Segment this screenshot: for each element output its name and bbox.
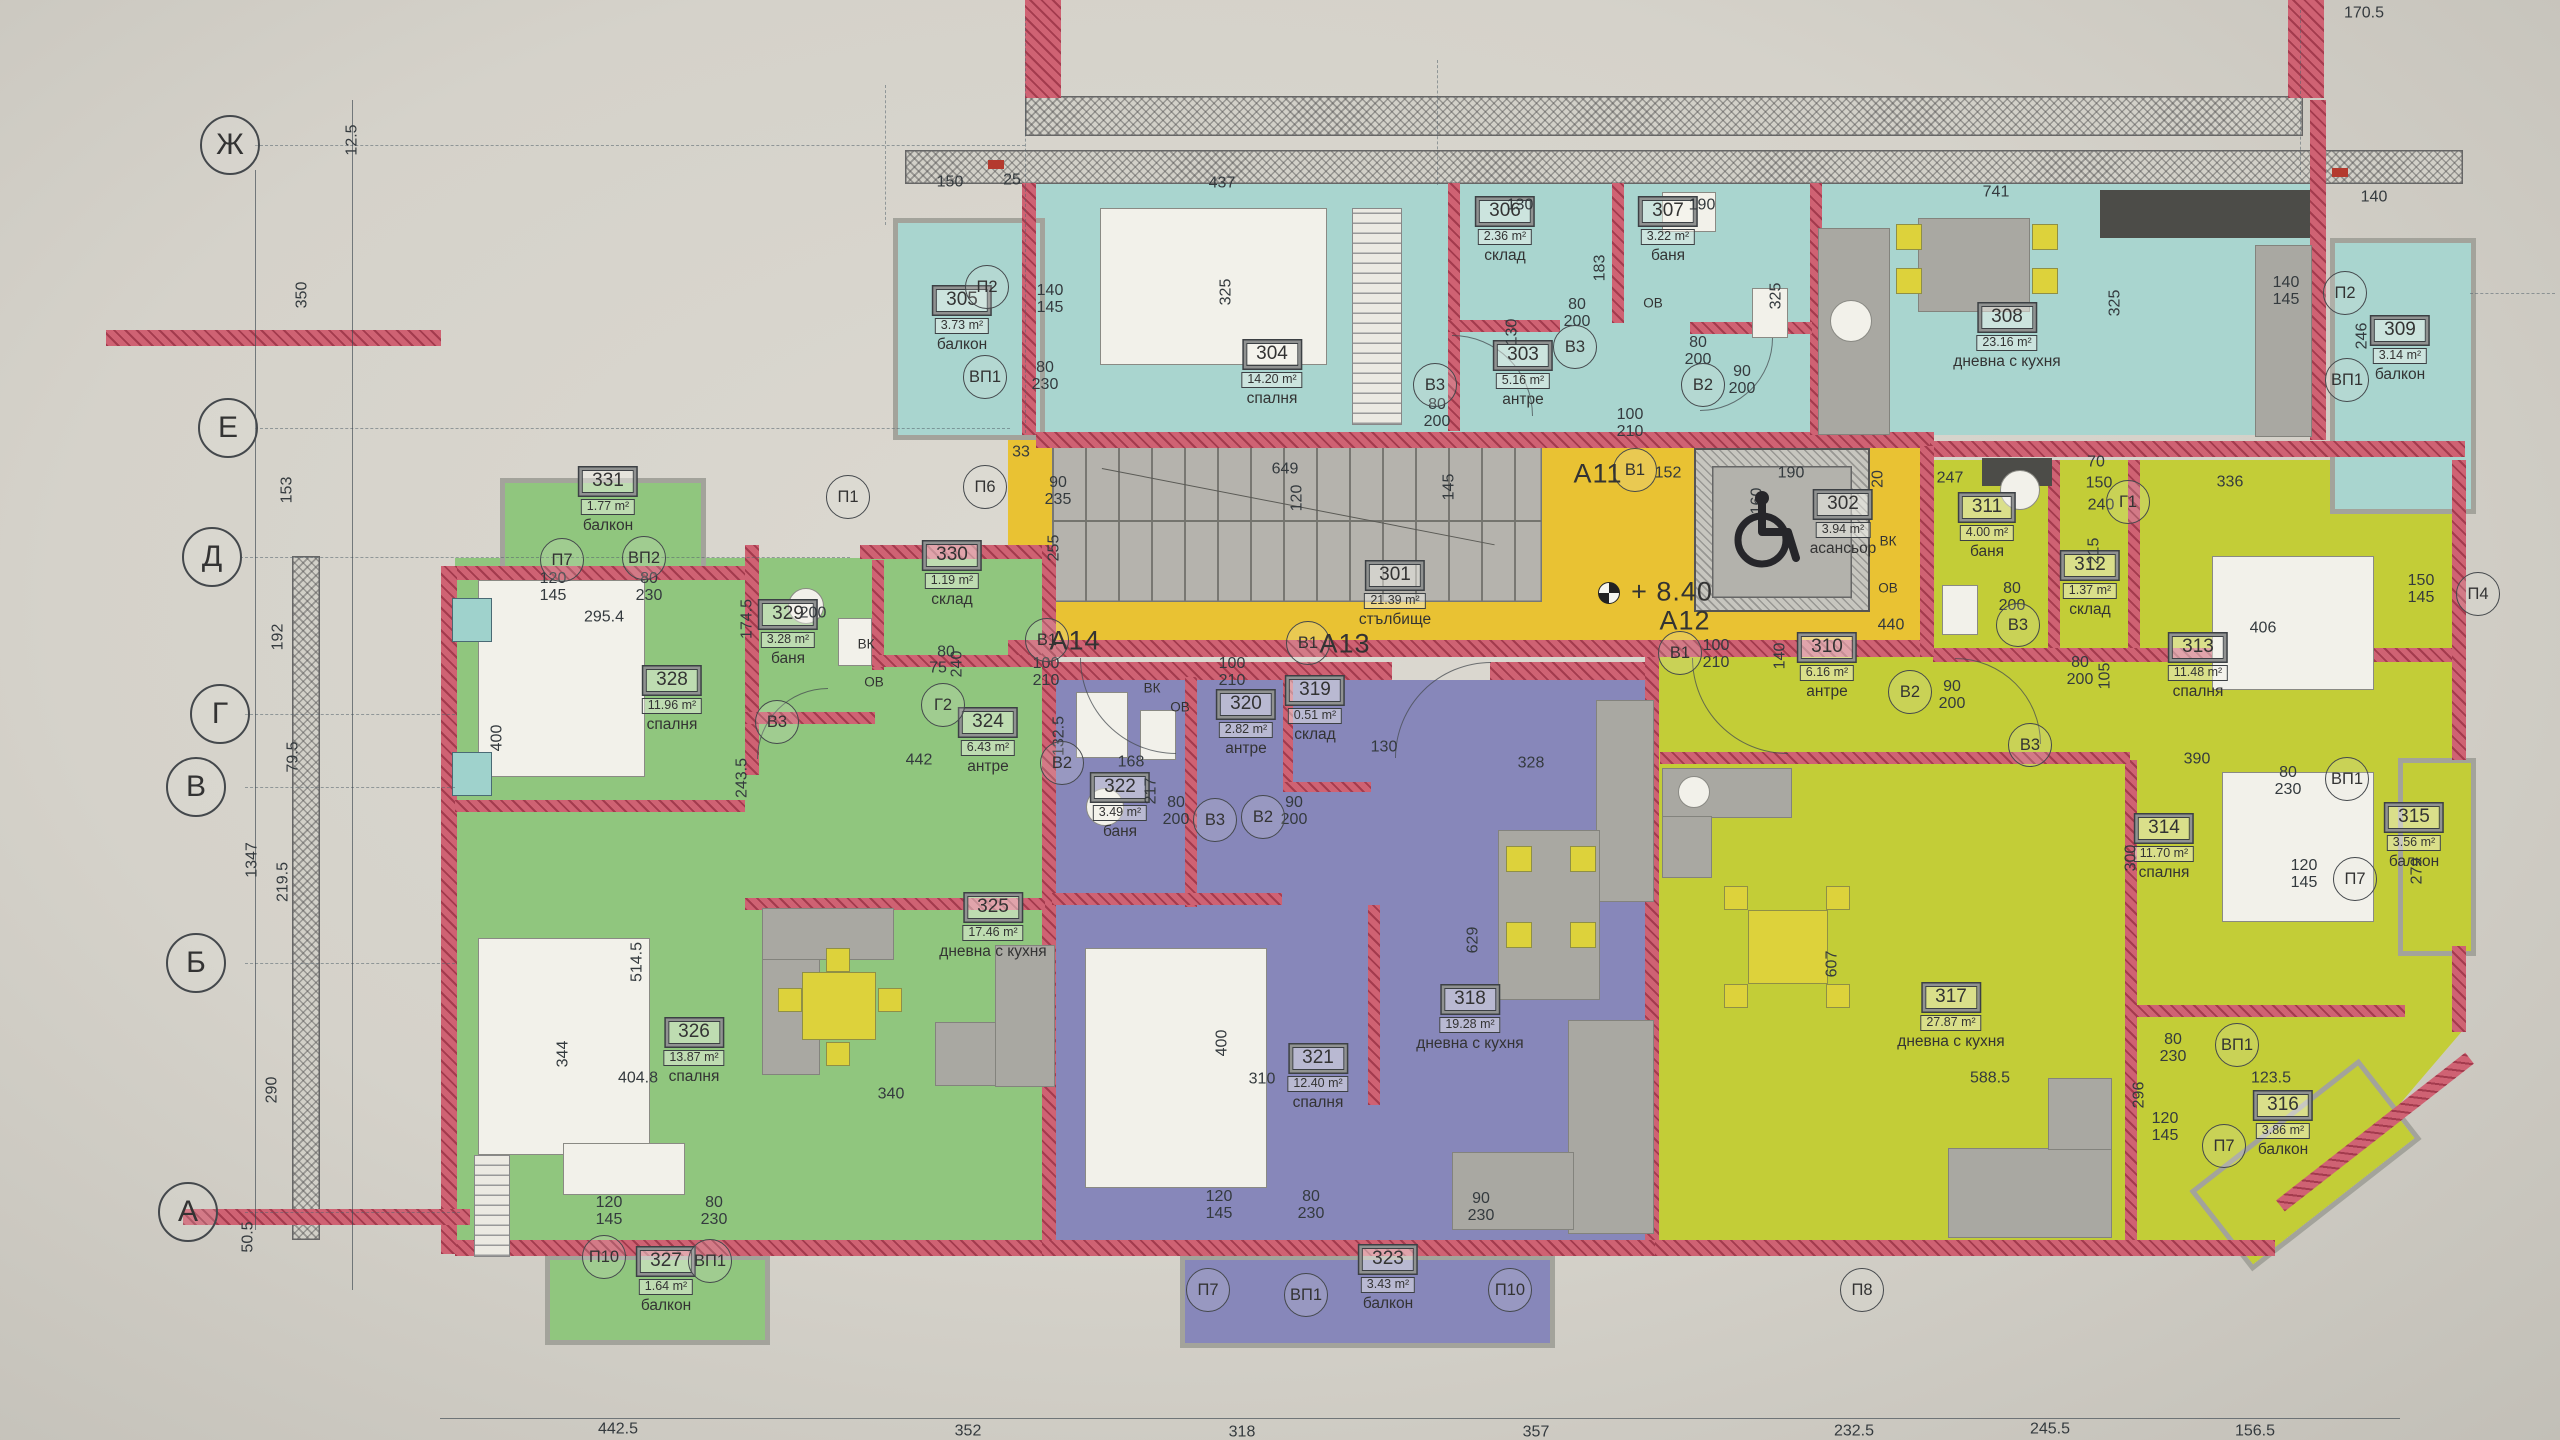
room-name: склад	[2063, 601, 2117, 618]
dimension-label: 130	[1371, 740, 1398, 757]
dimension-label: 105	[2098, 663, 2115, 690]
dimension-label: 318	[1229, 1425, 1256, 1440]
room-number: 318	[1444, 988, 1496, 1011]
room-area: 3.22 m²	[1641, 229, 1695, 245]
dimension-label: 153	[280, 477, 297, 504]
axis-label-Д: Д	[182, 527, 242, 587]
room-label: 31311.48 m²спалня	[2168, 636, 2228, 700]
opening-marker-В2: В2	[1241, 795, 1285, 839]
room-area: 23.16 m²	[1976, 335, 2037, 351]
room-number: 327	[640, 1250, 692, 1273]
furniture	[826, 1042, 850, 1066]
room-label: 3223.49 m²баня	[1093, 776, 1147, 840]
door-swing-arc	[1395, 662, 1491, 758]
furniture	[1826, 984, 1850, 1008]
room-number: 315	[2388, 806, 2440, 829]
dimension-label: 20	[1871, 470, 1888, 488]
room-name: стълбище	[1359, 611, 1431, 628]
wall	[905, 150, 2463, 184]
dimension-label: 140 145	[1037, 283, 1064, 317]
dimension-label: 140	[1773, 643, 1790, 670]
dimension-label: 232.5	[1834, 1424, 1874, 1440]
room-name: дневна с кухня	[1953, 353, 2060, 370]
grid-line	[1025, 18, 1026, 433]
room-name: склад	[925, 591, 979, 608]
dimension-label: 90 200	[1939, 679, 1966, 713]
room-name: балкон	[581, 517, 635, 534]
room-number: 301	[1369, 564, 1421, 587]
grid-line	[245, 963, 455, 964]
dimension-label: 246	[2355, 323, 2372, 350]
dimension-label: 437	[1209, 176, 1236, 193]
room-name: спалня	[642, 716, 702, 733]
opening-marker-Г1: Г1	[2106, 480, 2150, 524]
wall	[292, 556, 320, 1240]
opening-marker-П2: П2	[2323, 271, 2367, 315]
axis-label-Г: Г	[190, 684, 250, 744]
opening-marker-В3: В3	[1413, 363, 1457, 407]
furniture	[1506, 922, 1532, 948]
opening-marker-П8: П8	[1840, 1268, 1884, 1312]
room-label: 3114.00 m²баня	[1960, 496, 2014, 560]
room-name: антре	[1800, 683, 1854, 700]
room-name: балкон	[1361, 1295, 1415, 1312]
dimension-label: 75	[929, 661, 947, 678]
room-area: 3.86 m²	[2256, 1123, 2310, 1139]
room-number: 304	[1246, 343, 1298, 366]
room-number: 325	[967, 896, 1019, 919]
opening-marker-В2: В2	[1040, 741, 1084, 785]
dimension-label: 25	[1003, 173, 1021, 190]
dimension-label: 33	[1012, 445, 1030, 462]
furniture	[474, 1155, 510, 1257]
dimension-label: 12.5	[345, 124, 362, 155]
room-area: 1.77 m²	[581, 499, 635, 515]
room-area: 3.56 m²	[2387, 835, 2441, 851]
room-area: 3.28 m²	[761, 632, 815, 648]
opening-marker-ВП1: ВП1	[963, 355, 1007, 399]
annotation-text: ОВ	[1643, 296, 1663, 311]
dimension-label: 100 210	[1219, 656, 1246, 690]
room-label: 3023.94 m²асансьор	[1810, 493, 1877, 557]
room-area: 1.37 m²	[2063, 583, 2117, 599]
dimension-label: 190	[1689, 198, 1716, 215]
dimension-label: 215	[2087, 538, 2104, 565]
dimension-label: 120 145	[2291, 858, 2318, 892]
opening-marker-П2: П2	[965, 265, 1009, 309]
opening-marker-В2: В2	[1681, 363, 1725, 407]
dimension-label: 50.5	[241, 1221, 258, 1252]
room-label: 32811.96 m²спалня	[642, 669, 702, 733]
room-area: 4.00 m²	[1960, 525, 2014, 541]
room-label: 3271.64 m²балкон	[639, 1250, 693, 1314]
dimension-label: 80 200	[2067, 655, 2094, 689]
dimension-label: 80 230	[2275, 765, 2302, 799]
opening-marker-П10: П10	[582, 1235, 626, 1279]
room-label: 3035.16 m²антре	[1496, 344, 1550, 408]
furniture	[826, 948, 850, 972]
room-label: 3311.77 m²балкон	[581, 470, 635, 534]
dimension-label: 80 230	[1298, 1189, 1325, 1223]
wall	[745, 545, 759, 775]
dimension-label: 90 200	[1729, 364, 1756, 398]
room-number: 316	[2257, 1094, 2309, 1117]
dimension-label: 79.5	[286, 741, 303, 772]
axis-label-Е: Е	[198, 398, 258, 458]
furniture	[452, 752, 492, 796]
dimension-label: 217	[1144, 778, 1161, 805]
furniture	[2032, 224, 2058, 250]
dimension-label: 150	[937, 175, 964, 192]
axis-label-А: А	[158, 1182, 218, 1242]
dimension-label: 350	[295, 282, 312, 309]
room-label: 3246.43 m²антре	[961, 711, 1015, 775]
room-number: 321	[1292, 1047, 1344, 1070]
opening-marker-В3: В3	[1996, 603, 2040, 647]
wall	[1920, 446, 1934, 657]
room-area: 11.96 m²	[642, 698, 702, 714]
furniture	[1506, 846, 1532, 872]
wall	[1008, 640, 1933, 657]
axis-label-Ж: Ж	[200, 115, 260, 175]
room-area: 3.43 m²	[1361, 1277, 1415, 1293]
room-area: 2.82 m²	[1219, 722, 1273, 738]
dimension-label: 120 145	[1206, 1189, 1233, 1223]
room-area: 13.87 m²	[663, 1050, 724, 1066]
room-area: 2.36 m²	[1478, 229, 1532, 245]
dimension-label: 219.5	[276, 862, 293, 902]
room-label: 30414.20 m²спалня	[1241, 343, 1302, 407]
dimension-label: 120 145	[2152, 1111, 2179, 1145]
furniture	[1826, 886, 1850, 910]
dimension-label: 336	[2217, 475, 2244, 492]
section-marker	[988, 160, 1004, 169]
dimension-label: 514.5	[630, 942, 647, 982]
annotation-text: А11	[1573, 459, 1622, 490]
room-area: 6.43 m²	[961, 740, 1015, 756]
opening-marker-Г2: Г2	[921, 683, 965, 727]
furniture	[452, 598, 492, 642]
grid-line	[885, 85, 886, 225]
grid-line	[245, 714, 455, 715]
dimension-label: 442.5	[598, 1422, 638, 1439]
wall	[1612, 183, 1624, 323]
dimension-label: 279	[2410, 858, 2427, 885]
wall	[1036, 432, 1934, 448]
dimension-label: 90 230	[1468, 1191, 1495, 1225]
dimension-label: 340	[878, 1087, 905, 1104]
dimension-label: 588.5	[1970, 1071, 2010, 1088]
room-area: 0.51 m²	[1288, 708, 1342, 724]
opening-marker-П7: П7	[2333, 857, 2377, 901]
opening-marker-П1: П1	[826, 475, 870, 519]
room-area: 19.28 m²	[1439, 1017, 1500, 1033]
room-area: 27.87 m²	[1920, 1015, 1981, 1031]
dimension-label: 80	[937, 645, 955, 662]
dimension-label: 168	[1118, 755, 1145, 772]
furniture	[1570, 922, 1596, 948]
wall	[1283, 782, 1371, 792]
annotation-text: А12	[1659, 606, 1710, 637]
room-label: 3106.16 m²антре	[1800, 636, 1854, 700]
room-area: 1.19 m²	[925, 573, 979, 589]
opening-marker-В1: В1	[1658, 631, 1702, 675]
dimension-label: 296	[2132, 1082, 2149, 1109]
dimension-label: 100 210	[1617, 407, 1644, 441]
room-name: склад	[1288, 726, 1342, 743]
room-name: балкон	[2256, 1141, 2310, 1158]
room-name: баня	[1960, 543, 2014, 560]
furniture	[1678, 776, 1710, 808]
wall	[455, 1240, 1055, 1256]
opening-marker-ВП1: ВП1	[688, 1239, 732, 1283]
opening-marker-П10: П10	[1488, 1268, 1532, 1312]
furniture	[995, 945, 1055, 1087]
annotation-text: ОВ	[864, 675, 884, 690]
dimension-label: 80 230	[701, 1195, 728, 1229]
dimension-label: 400	[1215, 1030, 1232, 1057]
grid-line	[245, 787, 455, 788]
room-number: 330	[926, 544, 978, 567]
room-name: склад	[1478, 247, 1532, 264]
dimension-label: 145	[1442, 474, 1459, 501]
furniture	[1918, 218, 2030, 312]
dimension-label: 442	[906, 753, 933, 770]
furniture	[1570, 846, 1596, 872]
opening-marker-ВП1: ВП1	[2325, 358, 2369, 402]
opening-marker-П7: П7	[1186, 1268, 1230, 1312]
wall	[455, 566, 755, 580]
room-number: 313	[2172, 636, 2224, 659]
opening-marker-П6: П6	[963, 465, 1007, 509]
dimension-label: 90 200	[1281, 795, 1308, 829]
wall	[1042, 1240, 1655, 1256]
furniture	[1724, 984, 1748, 1008]
wall	[441, 566, 457, 1254]
room-label: 3073.22 m²баня	[1641, 200, 1695, 264]
room-area: 3.49 m²	[1093, 805, 1147, 821]
wall	[1930, 441, 2465, 457]
room-label: 3190.51 m²склад	[1288, 679, 1342, 743]
room-area: 3.73 m²	[935, 318, 989, 334]
dimension-label: 357	[1523, 1425, 1550, 1440]
dimension-label: 607	[1825, 951, 1842, 978]
dimension-label: 100 210	[1703, 638, 1730, 672]
annotation-text: + 8.40	[1631, 577, 1713, 608]
room-label: 3301.19 m²склад	[925, 544, 979, 608]
wall	[2048, 460, 2060, 657]
wall	[2125, 1005, 2405, 1017]
room-name: дневна с кухня	[939, 943, 1046, 960]
dimension-label: 140	[2361, 190, 2388, 207]
room-number: 314	[2138, 817, 2190, 840]
room-area: 5.16 m²	[1496, 373, 1550, 389]
furniture	[1896, 268, 1922, 294]
furniture	[2048, 1078, 2112, 1150]
opening-marker-ВП1: ВП1	[2325, 757, 2369, 801]
room-name: спалня	[1241, 390, 1302, 407]
furniture	[1568, 1020, 1654, 1234]
room-area: 14.20 m²	[1241, 372, 1302, 388]
wall	[872, 560, 884, 670]
annotation-text: ВК	[858, 637, 875, 652]
axis-label-Б: Б	[166, 933, 226, 993]
dimension-label: 183	[1593, 255, 1610, 282]
wall	[2452, 946, 2466, 1032]
floor-plan-canvas: 30121.39 m²стълбище3023.94 m²асансьор303…	[0, 0, 2560, 1440]
dimension-label: 310	[1249, 1072, 1276, 1089]
dimension-label: 174.5	[740, 599, 757, 639]
room-area: 11.48 m²	[2168, 665, 2228, 681]
room-number: 328	[646, 669, 698, 692]
opening-marker-П7: П7	[540, 538, 584, 582]
dimension-label: 406	[2250, 621, 2277, 638]
room-area: 11.70 m²	[2134, 846, 2194, 862]
grid-line	[352, 100, 353, 1290]
opening-marker-В3: В3	[2008, 723, 2052, 767]
annotation-text: А14	[1049, 626, 1100, 657]
section-marker	[2332, 168, 2348, 177]
dimension-label: 190	[1778, 466, 1805, 483]
opening-marker-В3: В3	[1193, 798, 1237, 842]
dimension-label: 70	[2087, 455, 2105, 472]
room-number: 319	[1289, 679, 1341, 702]
grid-line	[2300, 10, 2301, 175]
annotation-text: ОВ	[1170, 700, 1190, 715]
room-label: 3233.43 m²балкон	[1361, 1248, 1415, 1312]
room-name: балкон	[935, 336, 989, 353]
room-number: 310	[1801, 636, 1853, 659]
dimension-label: 90 235	[1045, 475, 1072, 509]
annotation-text: ВК	[1880, 534, 1897, 549]
room-number: 307	[1642, 200, 1694, 223]
dimension-label: 255	[1047, 535, 1064, 562]
furniture	[1948, 1148, 2112, 1238]
axis-label-В: В	[166, 757, 226, 817]
room-label: 32517.46 m²дневна с кухня	[939, 896, 1046, 960]
dimension-label: 300	[2124, 845, 2141, 872]
room-label: 31819.28 m²дневна с кухня	[1416, 988, 1523, 1052]
dimension-label: 290	[265, 1077, 282, 1104]
opening-marker-В3: В3	[755, 700, 799, 744]
furniture	[1100, 208, 1327, 365]
wall	[1052, 893, 1282, 905]
room-name: баня	[1093, 823, 1147, 840]
room-number: 326	[668, 1021, 720, 1044]
room-number: 302	[1817, 493, 1869, 516]
room-label: 31727.87 m²дневна с кухня	[1897, 986, 2004, 1050]
room-area: 6.16 m²	[1800, 665, 1854, 681]
dimension-label: 170.5	[2344, 6, 2384, 23]
dimension-label: 156.5	[2235, 1424, 2275, 1440]
wall	[1690, 322, 1812, 334]
wall	[1490, 662, 1655, 680]
room-label: 3163.86 m²балкон	[2256, 1094, 2310, 1158]
wall	[1025, 96, 2303, 136]
furniture	[1085, 948, 1267, 1188]
room-number: 320	[1220, 693, 1272, 716]
dimension-label: 123.5	[2251, 1071, 2291, 1088]
dimension-label: 400	[490, 725, 507, 752]
grid-line	[440, 1418, 2400, 1419]
room-number: 323	[1362, 1248, 1414, 1271]
dimension-label: 1347	[245, 842, 262, 878]
dimension-label: 325	[1219, 279, 1236, 306]
dimension-label: 245.5	[2030, 1422, 2070, 1439]
dimension-label: 140 145	[2273, 275, 2300, 309]
room-name: антре	[1219, 740, 1273, 757]
room-name: балкон	[639, 1297, 693, 1314]
dimension-label: 192	[271, 624, 288, 651]
furniture	[1942, 585, 1978, 635]
room-name: спалня	[2168, 683, 2228, 700]
room-name: асансьор	[1810, 540, 1877, 557]
room-number: 324	[962, 711, 1014, 734]
dimension-label: 649	[1272, 462, 1299, 479]
furniture	[1352, 208, 1402, 425]
opening-marker-ВП1: ВП1	[1284, 1273, 1328, 1317]
room-area: 12.40 m²	[1287, 1076, 1348, 1092]
room-label: 32613.87 m²спалня	[663, 1021, 724, 1085]
room-number: 331	[582, 470, 634, 493]
wall	[2288, 0, 2324, 98]
dimension-label: 325	[1769, 283, 1786, 310]
room-label: 3093.14 m²балкон	[2373, 319, 2427, 383]
dimension-label: 150 145	[2408, 573, 2435, 607]
opening-marker-ВП2: ВП2	[622, 536, 666, 580]
furniture	[1662, 816, 1712, 878]
furniture	[1830, 300, 1872, 342]
dimension-label: 247	[1937, 471, 1964, 488]
grid-line	[255, 428, 1010, 429]
dimension-label: 440	[1878, 618, 1905, 635]
wall	[1025, 0, 1061, 98]
grid-line	[1437, 60, 1438, 185]
wall	[2310, 100, 2326, 440]
room-area: 1.64 m²	[639, 1279, 693, 1295]
furniture	[2032, 268, 2058, 294]
furniture	[1748, 910, 1828, 984]
room-area: 3.14 m²	[2373, 348, 2427, 364]
wall	[1655, 1240, 2275, 1256]
room-number: 322	[1094, 776, 1146, 799]
dimension-label: 325	[2108, 290, 2125, 317]
wall	[455, 800, 745, 812]
room-number: 308	[1981, 306, 2033, 329]
dimension-label: 295.4	[584, 610, 624, 627]
dimension-label: 328	[1518, 756, 1545, 773]
dimension-label: 404.8	[618, 1071, 658, 1088]
wall	[1660, 752, 2130, 764]
room-name: балкон	[2373, 366, 2427, 383]
wall	[1368, 905, 1380, 1105]
room-number: 311	[1962, 496, 2012, 519]
room-name: спалня	[1287, 1094, 1348, 1111]
room-name: спалня	[663, 1068, 724, 1085]
dimension-label: 120 145	[596, 1195, 623, 1229]
wall	[106, 330, 441, 346]
grid-line	[255, 170, 256, 1230]
room-name: дневна с кухня	[1416, 1035, 1523, 1052]
annotation-text: ВК	[1144, 681, 1161, 696]
room-number: 303	[1497, 344, 1549, 367]
furniture	[778, 988, 802, 1012]
room-number: 309	[2374, 319, 2426, 342]
dimension-label: 243.5	[735, 758, 752, 798]
furniture	[1896, 224, 1922, 250]
dimension-label: 80 200	[1163, 795, 1190, 829]
dimension-label: 152	[1655, 466, 1682, 483]
